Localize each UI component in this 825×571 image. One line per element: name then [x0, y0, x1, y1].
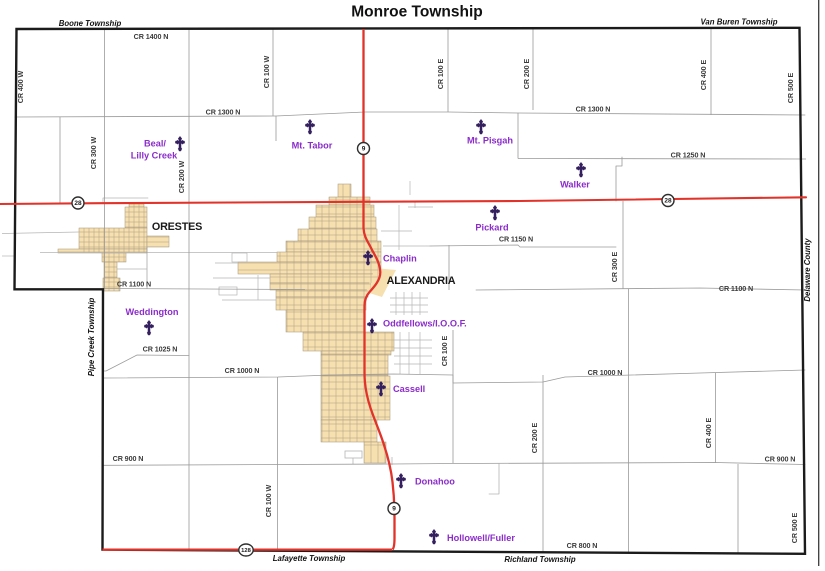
svg-text:CR 100 E: CR 100 E: [440, 336, 449, 367]
svg-text:9: 9: [362, 146, 366, 153]
svg-text:Richland Township: Richland Township: [504, 555, 575, 564]
svg-text:Lilly Creek: Lilly Creek: [131, 151, 178, 161]
svg-text:CR 300 E: CR 300 E: [610, 252, 619, 283]
svg-text:CR 400 E: CR 400 E: [704, 418, 713, 449]
svg-text:Cassell: Cassell: [393, 384, 425, 394]
svg-text:Mt. Pisgah: Mt. Pisgah: [467, 136, 513, 146]
svg-text:Pipe Creek Township: Pipe Creek Township: [87, 297, 96, 376]
svg-text:ALEXANDRIA: ALEXANDRIA: [387, 275, 456, 287]
svg-text:CR 1000 N: CR 1000 N: [225, 366, 260, 375]
svg-text:CR 400 W: CR 400 W: [16, 71, 25, 104]
svg-text:Delaware County: Delaware County: [803, 238, 812, 302]
svg-text:Boone Township: Boone Township: [59, 19, 122, 28]
svg-text:Monroe Township: Monroe Township: [351, 4, 482, 21]
svg-text:CR 200 E: CR 200 E: [530, 423, 539, 454]
svg-text:Weddington: Weddington: [126, 307, 179, 317]
svg-text:Oddfellows/I.O.O.F.: Oddfellows/I.O.O.F.: [383, 319, 467, 329]
svg-text:CR 1150 N: CR 1150 N: [499, 235, 533, 244]
svg-text:CR 500 E: CR 500 E: [790, 513, 799, 544]
svg-text:CR 900 N: CR 900 N: [765, 455, 796, 464]
svg-text:Lafayette Township: Lafayette Township: [273, 554, 346, 563]
svg-text:CR 100 E: CR 100 E: [436, 59, 445, 90]
svg-text:CR 1250 N: CR 1250 N: [671, 151, 706, 160]
svg-text:CR 1400 N: CR 1400 N: [134, 32, 169, 41]
svg-text:CR 100 W: CR 100 W: [262, 56, 271, 89]
svg-text:Donahoo: Donahoo: [415, 477, 455, 487]
svg-text:Chaplin: Chaplin: [383, 254, 417, 264]
svg-text:CR 1000 N: CR 1000 N: [588, 368, 623, 377]
svg-text:CR 1100 N: CR 1100 N: [117, 280, 151, 289]
svg-text:Hollowell/Fuller: Hollowell/Fuller: [447, 533, 515, 543]
svg-text:28: 28: [74, 200, 82, 207]
svg-text:CR 100 W: CR 100 W: [264, 485, 273, 518]
svg-text:CR 1300 N: CR 1300 N: [576, 105, 611, 114]
svg-text:CR 400 E: CR 400 E: [699, 60, 708, 91]
svg-text:Walker: Walker: [560, 180, 590, 190]
svg-text:Pickard: Pickard: [475, 223, 508, 233]
svg-text:CR 300 W: CR 300 W: [89, 137, 98, 170]
svg-text:Beal/: Beal/: [144, 139, 166, 149]
svg-text:CR 1300 N: CR 1300 N: [206, 108, 241, 117]
svg-text:CR 1025 N: CR 1025 N: [143, 345, 178, 354]
svg-text:Mt. Tabor: Mt. Tabor: [292, 141, 333, 151]
svg-text:CR 800 N: CR 800 N: [567, 541, 598, 550]
svg-text:CR 500 E: CR 500 E: [786, 73, 795, 104]
svg-text:CR 1100 N: CR 1100 N: [719, 284, 753, 293]
svg-text:CR 200 E: CR 200 E: [522, 59, 531, 90]
svg-text:28: 28: [664, 198, 672, 205]
svg-text:CR 200 W: CR 200 W: [177, 161, 186, 194]
svg-text:Van Buren Township: Van Buren Township: [701, 18, 778, 27]
svg-text:CR 900 N: CR 900 N: [113, 454, 144, 463]
svg-text:ORESTES: ORESTES: [152, 221, 202, 233]
svg-text:128: 128: [241, 548, 251, 554]
svg-text:9: 9: [392, 506, 396, 513]
